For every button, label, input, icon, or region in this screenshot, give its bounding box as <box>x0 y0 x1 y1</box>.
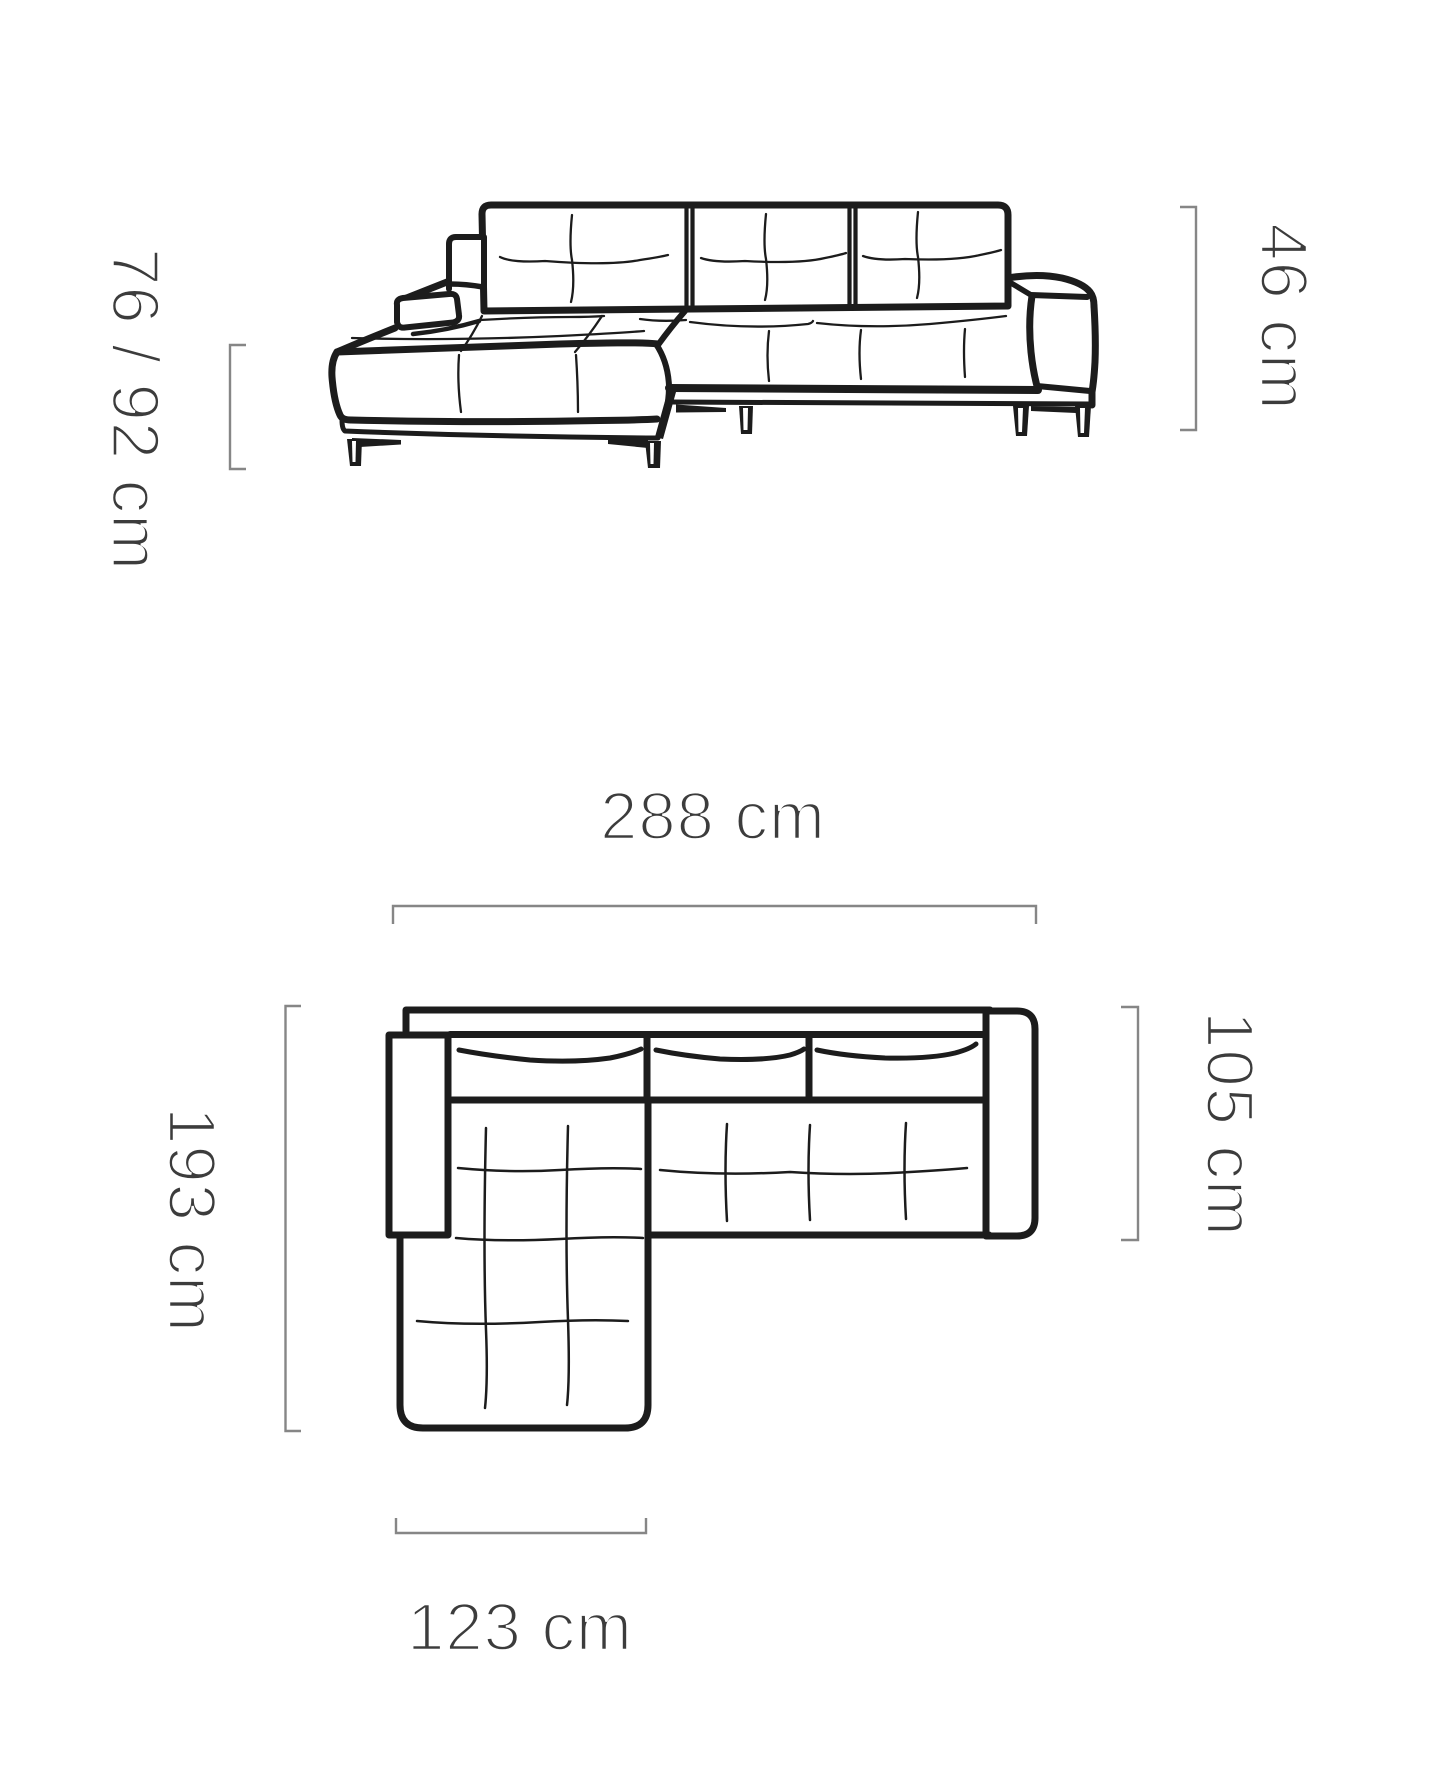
svg-text:46 cm: 46 cm <box>1246 223 1321 410</box>
svg-text:288 cm: 288 cm <box>600 779 826 854</box>
svg-text:76 / 92 cm: 76 / 92 cm <box>98 248 173 571</box>
svg-text:123 cm: 123 cm <box>407 1590 633 1665</box>
svg-text:105 cm: 105 cm <box>1192 1011 1267 1237</box>
svg-text:193 cm: 193 cm <box>154 1107 229 1333</box>
